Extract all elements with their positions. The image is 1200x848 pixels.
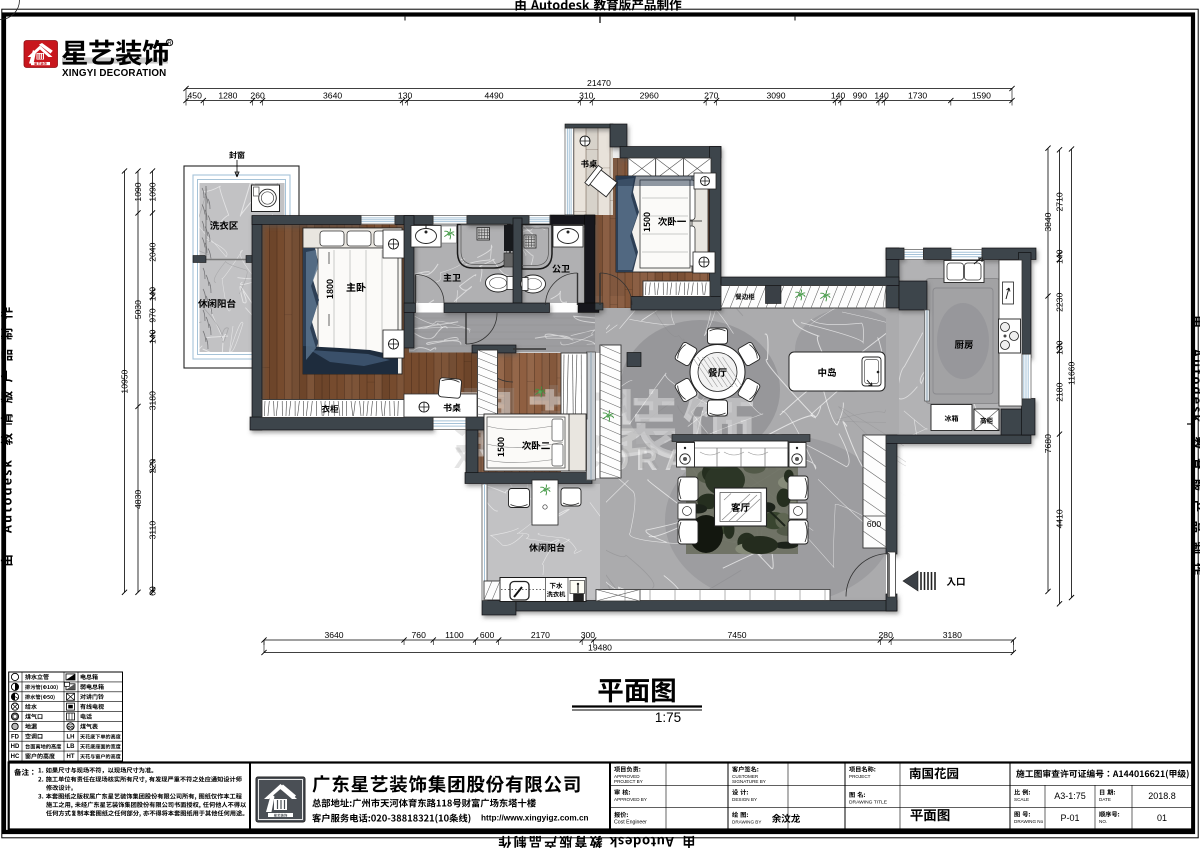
svg-text:DRAWING No: DRAWING No (1014, 819, 1044, 824)
svg-text:600: 600 (867, 519, 881, 529)
svg-text:140: 140 (1055, 249, 1065, 264)
svg-text:DRAWING BY: DRAWING BY (732, 820, 761, 825)
svg-text:2170: 2170 (531, 630, 550, 640)
svg-text:1100: 1100 (445, 630, 464, 640)
svg-text:4410: 4410 (1055, 509, 1065, 528)
svg-text:3090: 3090 (766, 90, 785, 100)
svg-text:760: 760 (412, 630, 427, 640)
svg-text:60: 60 (148, 586, 158, 596)
svg-text:310: 310 (579, 90, 594, 100)
svg-text:DRAWING TITLE: DRAWING TITLE (849, 800, 888, 806)
svg-text:140: 140 (874, 90, 889, 100)
svg-text:130: 130 (1055, 340, 1065, 355)
svg-text:260: 260 (250, 90, 265, 100)
svg-text:220: 220 (148, 459, 158, 474)
svg-text:P-01: P-01 (1060, 813, 1079, 823)
svg-text:11660: 11660 (1067, 361, 1077, 384)
svg-text:PROJECT: PROJECT (849, 774, 871, 779)
svg-text:PROJECT BY: PROJECT BY (614, 779, 643, 784)
svg-text:SIGNATURE BY: SIGNATURE BY (732, 779, 766, 784)
svg-text:19480: 19480 (588, 642, 612, 652)
svg-text:600: 600 (480, 630, 495, 640)
svg-text:3110: 3110 (148, 521, 158, 540)
svg-text:DATE: DATE (1099, 797, 1111, 802)
svg-text:10950: 10950 (120, 369, 130, 393)
svg-text:NO.: NO. (1099, 819, 1107, 824)
svg-text:3640: 3640 (324, 630, 343, 640)
svg-text:7680: 7680 (1043, 434, 1053, 453)
svg-text:HC: HC (11, 754, 20, 760)
svg-text:3640: 3640 (323, 90, 342, 100)
svg-text:HD: HD (11, 744, 20, 750)
svg-text:01: 01 (1157, 813, 1167, 823)
svg-text:LB: LB (67, 744, 76, 750)
svg-text:SCALE: SCALE (1014, 797, 1029, 802)
svg-text:970: 970 (148, 308, 158, 323)
svg-text:LH: LH (67, 734, 75, 740)
svg-text:1590: 1590 (972, 90, 991, 100)
svg-text:2180: 2180 (1055, 382, 1065, 401)
svg-text:270: 270 (704, 90, 719, 100)
svg-text:130: 130 (398, 90, 413, 100)
svg-text:7450: 7450 (727, 630, 746, 640)
svg-text:140: 140 (148, 329, 158, 344)
svg-text:3840: 3840 (1043, 212, 1053, 231)
svg-text:1090: 1090 (148, 182, 158, 201)
svg-text:XINGYI DECORATION: XINGYI DECORATION (62, 68, 166, 79)
svg-text:2040: 2040 (148, 242, 158, 261)
svg-text:R: R (167, 40, 172, 47)
svg-text:140: 140 (831, 90, 846, 100)
svg-text:280: 280 (879, 630, 894, 640)
svg-text:FD: FD (11, 734, 20, 740)
svg-text:450: 450 (188, 90, 203, 100)
svg-text:2710: 2710 (1055, 192, 1065, 211)
svg-text:4490: 4490 (484, 90, 503, 100)
svg-text:1090: 1090 (133, 182, 143, 201)
svg-text:21470: 21470 (587, 78, 611, 88)
svg-text:990: 990 (853, 90, 868, 100)
svg-text:140: 140 (148, 287, 158, 302)
svg-text:APPROVED BY: APPROVED BY (614, 797, 647, 802)
svg-text:HT: HT (67, 754, 75, 760)
svg-text:2018.8: 2018.8 (1148, 791, 1176, 801)
svg-text:A3-1:75: A3-1:75 (1054, 791, 1086, 801)
svg-text:DESIGN BY: DESIGN BY (732, 797, 757, 802)
svg-text:1:75: 1:75 (655, 710, 681, 725)
svg-text:300: 300 (581, 630, 596, 640)
svg-text:Cost Engineer: Cost Engineer (614, 820, 647, 826)
svg-text:2960: 2960 (640, 90, 659, 100)
svg-text:2230: 2230 (1055, 293, 1065, 312)
svg-text:3180: 3180 (148, 391, 158, 410)
svg-text:1280: 1280 (218, 90, 237, 100)
svg-text:5030: 5030 (133, 300, 143, 319)
svg-text:3180: 3180 (943, 630, 962, 640)
svg-text:http://www.xingyigz.com.cn: http://www.xingyigz.com.cn (481, 814, 589, 823)
svg-text:1730: 1730 (908, 90, 927, 100)
svg-text:4830: 4830 (133, 490, 143, 509)
